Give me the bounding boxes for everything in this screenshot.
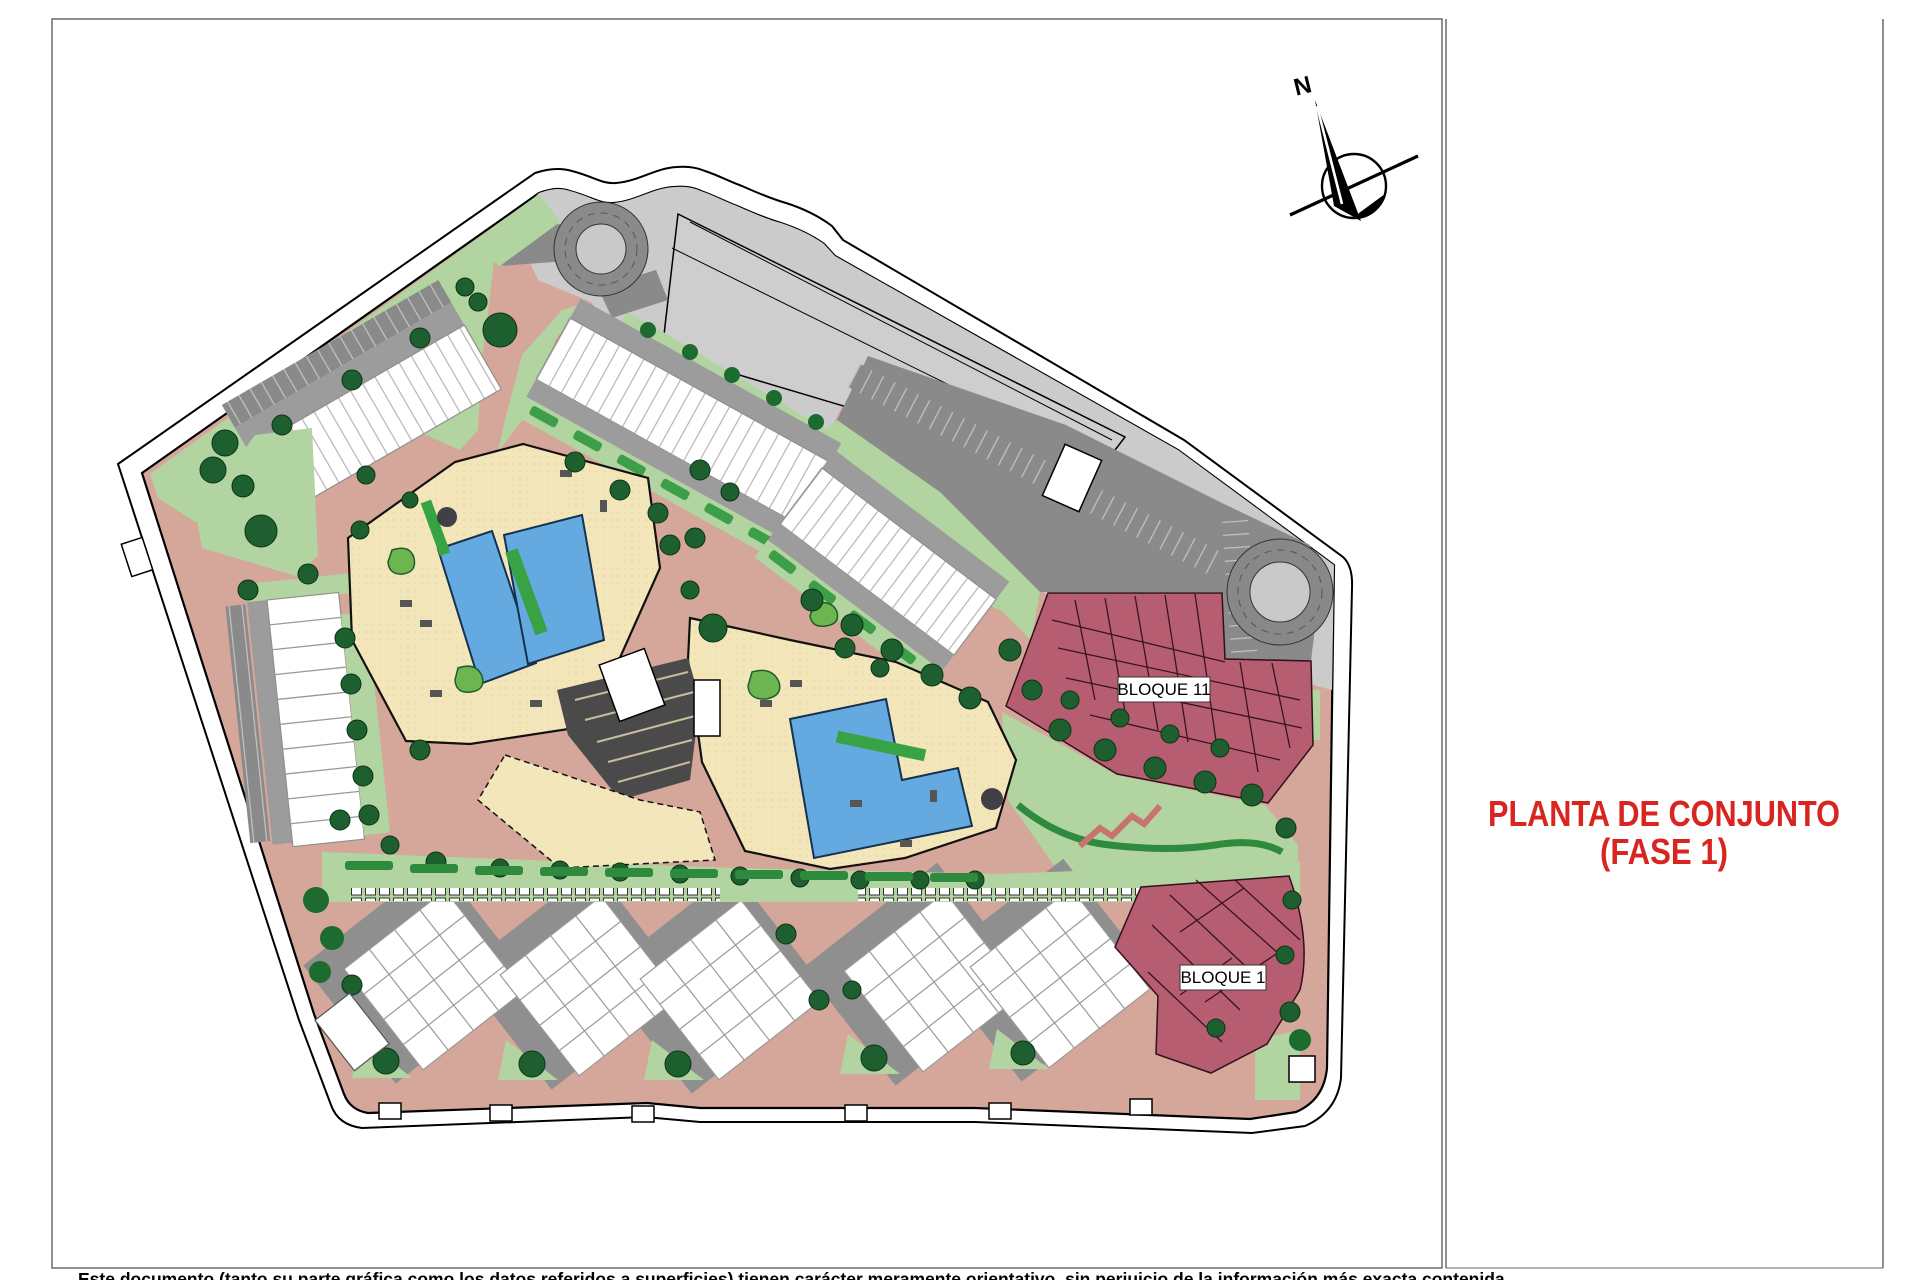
svg-text:N: N [1291, 71, 1314, 101]
svg-text:PLANTA DE CONJUNTO: PLANTA DE CONJUNTO [1488, 793, 1840, 834]
svg-text:(FASE 1): (FASE 1) [1600, 831, 1728, 872]
svg-text:BLOQUE 1: BLOQUE 1 [1180, 968, 1265, 987]
svg-text:BLOQUE 11: BLOQUE 11 [1117, 680, 1210, 699]
svg-text:Este documento (tanto su parte: Este documento (tanto su parte gráfica c… [78, 1269, 1505, 1280]
